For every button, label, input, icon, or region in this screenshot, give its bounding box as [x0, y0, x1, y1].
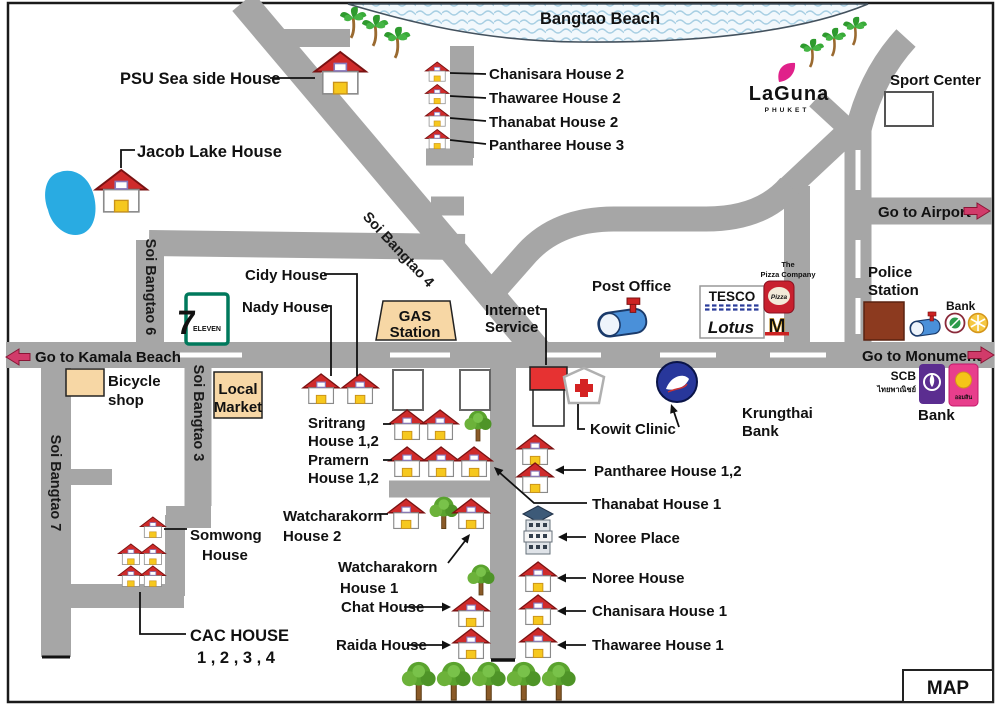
krungsri-bank-icon — [969, 314, 988, 333]
label-chanisara-2: Chanisara House 2 — [489, 66, 624, 83]
label-scb: SCB — [891, 369, 917, 383]
empty-building — [393, 370, 423, 410]
label-thanabat-1: Thanabat House 1 — [592, 496, 721, 513]
laguna-sub: PHUKET — [765, 107, 810, 114]
pizza-script-text: Pizza — [771, 294, 788, 301]
label-cac-1: CAC HOUSE — [190, 627, 289, 645]
label-police-1: Police — [868, 264, 912, 281]
label-police-2: Station — [868, 282, 919, 299]
label-kowit-clinic: Kowit Clinic — [590, 421, 676, 438]
label-bangtao-beach: Bangtao Beach — [540, 10, 660, 28]
label-bicycle-2: shop — [108, 392, 144, 409]
label-local-market-2: Market — [214, 399, 262, 416]
scb-bank-logo — [919, 364, 945, 404]
label-bank-ne: Bank — [946, 299, 976, 313]
label-noree-house: Noree House — [592, 570, 685, 587]
label-pantharee-3: Pantharee House 3 — [489, 137, 624, 154]
label-thawaree-2: Thawaree House 2 — [489, 90, 621, 107]
label-internet-1: Internet — [485, 302, 540, 319]
label-soi-bangtao-6: Soi Bangtao 6 — [142, 239, 158, 336]
label-watcharakorn2-2: House 2 — [283, 528, 341, 545]
label-cac-2: 1 , 2 , 3 , 4 — [197, 649, 276, 667]
label-gas-1: GAS — [399, 308, 432, 325]
mcdonalds-logo: M — [765, 315, 789, 338]
map-canvas: Soi Bangtao 4 Soi Bangtao 6 Soi Bangtao … — [0, 0, 1000, 706]
label-noree-place: Noree Place — [594, 530, 680, 547]
pizza-company-logo: Pizza — [764, 281, 794, 313]
bicycle-shop-building — [66, 369, 104, 396]
seven-glyph: 7 — [176, 304, 198, 342]
police-station-building — [864, 302, 904, 340]
label-post-office: Post Office — [592, 278, 671, 295]
label-nady: Nady House — [242, 299, 329, 316]
label-cidy: Cidy House — [245, 267, 328, 284]
lotus-text: Lotus — [708, 318, 754, 337]
label-pizza-2: Pizza Company — [760, 270, 816, 279]
bangtao-map: Soi Bangtao 4 Soi Bangtao 6 Soi Bangtao … — [0, 0, 1000, 706]
eleven-glyph: ELEVEN — [193, 326, 221, 333]
label-somwong-2: House — [202, 547, 248, 564]
empty-building — [460, 370, 490, 410]
noree-place-building-icon — [523, 506, 553, 554]
label-jacob-lake: Jacob Lake House — [137, 143, 282, 161]
tesco-lotus-logo: TESCO Lotus — [700, 286, 764, 338]
label-gas-2: Station — [390, 324, 441, 341]
label-bank-se: Bank — [918, 407, 955, 424]
label-somwong-1: Somwong — [190, 527, 262, 544]
map-badge-text: MAP — [927, 678, 970, 699]
label-sritrang-1: Sritrang — [308, 415, 366, 432]
label-go-to-monument: Go to Monument — [862, 348, 981, 365]
label-scb-thai: ไทยพาณิชย์ — [876, 384, 916, 394]
label-sritrang-2: House 1,2 — [308, 433, 379, 450]
label-thawaree-1: Thawaree House 1 — [592, 637, 724, 654]
laguna-name: LaGuna — [749, 83, 829, 105]
label-raida-house: Raida House — [336, 637, 427, 654]
label-watcharakorn2-1: Watcharakorn — [283, 508, 382, 525]
label-soi-bangtao-3: Soi Bangtao 3 — [190, 365, 206, 462]
label-watcharakorn1-2: House 1 — [340, 580, 398, 597]
map-badge: MAP — [903, 670, 993, 702]
label-sport-center: Sport Center — [890, 72, 981, 89]
krungthai-bank-icon — [657, 362, 697, 402]
label-bicycle-1: Bicycle — [108, 373, 161, 390]
label-go-to-kamala: Go to Kamala Beach — [35, 349, 181, 366]
gsb-bank-logo: ออมสิน — [949, 364, 978, 406]
label-thanabat-2: Thanabat House 2 — [489, 114, 618, 131]
label-psu-sea-side: PSU Sea side House — [120, 70, 280, 88]
clinic-cross-icon — [564, 368, 604, 403]
label-internet-2: Service — [485, 319, 538, 336]
label-local-market-1: Local — [218, 381, 257, 398]
label-krungthai-2: Bank — [742, 423, 779, 440]
label-pramern-1: Pramern — [308, 452, 369, 469]
label-chat-house: Chat House — [341, 599, 424, 616]
kasikorn-bank-icon — [946, 314, 965, 333]
tesco-text: TESCO — [709, 289, 756, 304]
label-go-to-airport: Go to Airport — [878, 204, 971, 221]
label-krungthai-1: Krungthai — [742, 405, 813, 422]
label-pantharee-12: Pantharee House 1,2 — [594, 463, 742, 480]
label-pizza-1: The — [781, 260, 794, 269]
label-pramern-2: House 1,2 — [308, 470, 379, 487]
sport-center-building — [885, 92, 933, 126]
label-chanisara-1: Chanisara House 1 — [592, 603, 727, 620]
internet-service-building — [530, 367, 567, 426]
gsb-thai-text: ออมสิน — [955, 394, 973, 401]
label-soi-bangtao-7: Soi Bangtao 7 — [47, 435, 63, 532]
label-watcharakorn1-1: Watcharakorn — [338, 559, 437, 576]
